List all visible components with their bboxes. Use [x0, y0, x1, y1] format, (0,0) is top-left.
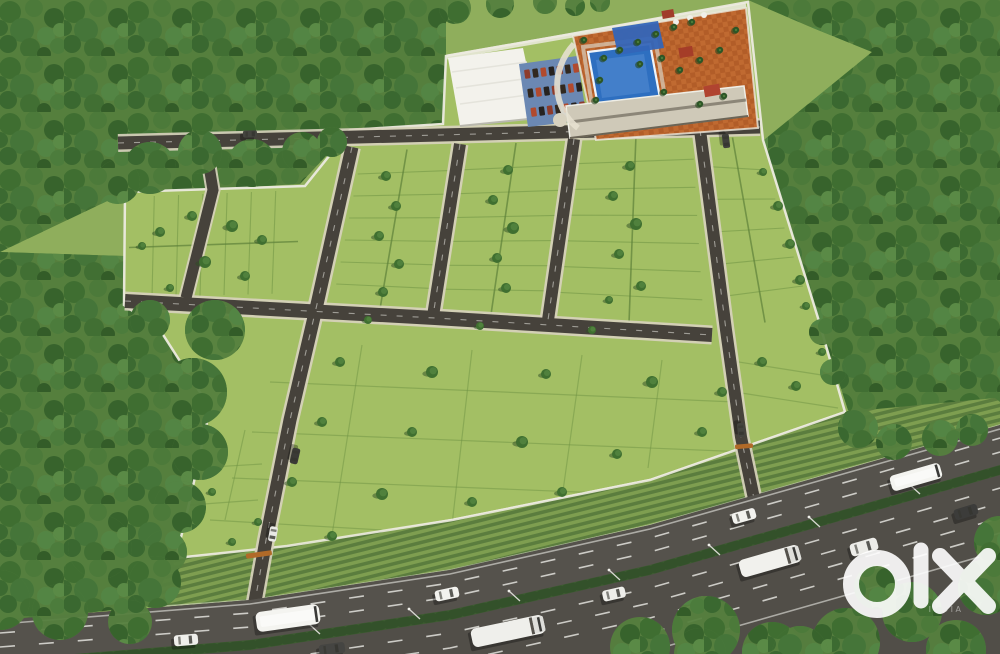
- canopy-cluster: [96, 160, 140, 204]
- streetlight-head: [508, 590, 511, 593]
- vehicle-body: [737, 423, 745, 438]
- canopy-cluster: [108, 600, 152, 644]
- tree: [544, 370, 550, 376]
- tree: [639, 282, 645, 288]
- canopy-cluster: [282, 132, 322, 172]
- tree: [628, 162, 634, 168]
- tree: [504, 284, 510, 290]
- aerial-render: Olx INDIA: [0, 0, 1000, 654]
- palm-tree: [723, 95, 725, 97]
- canopy-cluster: [922, 420, 958, 456]
- palm-tree: [691, 21, 693, 23]
- canopy-cluster: [178, 130, 222, 174]
- tree: [760, 358, 766, 364]
- windshield: [724, 142, 729, 146]
- palm-tree: [619, 49, 621, 51]
- tree: [203, 257, 210, 264]
- palm-tree: [595, 99, 597, 101]
- tree: [491, 196, 497, 202]
- tree: [611, 192, 617, 198]
- tree: [210, 489, 215, 494]
- canopy-cluster: [172, 424, 228, 480]
- tree: [140, 243, 145, 248]
- vehicle-body: [174, 633, 199, 646]
- tree: [168, 285, 173, 290]
- tree: [430, 367, 437, 374]
- tree: [761, 169, 766, 174]
- palm-tree: [699, 59, 701, 61]
- tree: [230, 221, 237, 228]
- tree: [410, 428, 416, 434]
- rear-window: [738, 425, 743, 428]
- tree: [804, 303, 809, 308]
- tree: [380, 489, 387, 496]
- tree: [338, 358, 344, 364]
- tree: [506, 166, 512, 172]
- palm-tree: [679, 69, 681, 71]
- tree: [290, 478, 296, 484]
- palm-tree: [603, 57, 605, 59]
- palm-tree: [663, 91, 665, 93]
- canopy-cluster: [185, 300, 245, 360]
- tree: [788, 240, 794, 246]
- canopy-cluster: [317, 127, 347, 157]
- palm-tree: [637, 41, 639, 43]
- palm-tree: [639, 63, 641, 65]
- streetlight-head: [708, 544, 711, 547]
- tree: [720, 388, 726, 394]
- tree: [158, 228, 164, 234]
- tree: [495, 254, 501, 260]
- canopy-cluster: [809, 319, 835, 345]
- tree: [615, 450, 621, 456]
- palm-tree: [599, 79, 601, 81]
- streetlight-head: [808, 516, 811, 519]
- tree: [381, 288, 387, 294]
- tree: [394, 202, 400, 208]
- tree: [634, 219, 641, 226]
- tree: [511, 223, 518, 230]
- tree: [470, 498, 476, 504]
- tree: [794, 382, 800, 388]
- canopy-cluster: [228, 139, 276, 187]
- tree: [590, 327, 595, 332]
- tree: [607, 297, 612, 302]
- tree: [820, 349, 825, 354]
- tree: [617, 250, 623, 256]
- tree: [256, 519, 261, 524]
- plaza-circle: [553, 113, 567, 127]
- tree: [330, 532, 336, 538]
- windshield: [252, 131, 255, 136]
- palm-tree: [719, 49, 721, 51]
- tree: [243, 272, 249, 278]
- palm-tree: [699, 103, 701, 105]
- rear-window: [245, 132, 247, 137]
- canopy-cluster: [32, 584, 88, 640]
- canopy-cluster: [130, 300, 170, 340]
- tree: [776, 202, 782, 208]
- canopy-cluster: [68, 515, 132, 579]
- vehicle-body: [243, 130, 257, 137]
- tree: [478, 323, 483, 328]
- palm-tree: [735, 29, 737, 31]
- tree: [190, 212, 196, 218]
- palm-tree: [661, 57, 663, 59]
- palm-tree: [583, 39, 585, 41]
- tree: [560, 488, 566, 494]
- canopy-cluster: [838, 408, 878, 448]
- tree: [230, 539, 235, 544]
- tree: [700, 428, 706, 434]
- windshield: [739, 431, 744, 435]
- streetlight-head: [608, 569, 611, 572]
- tree: [650, 377, 657, 384]
- canopy-cluster: [129, 556, 181, 608]
- olx-subtext: INDIA: [929, 605, 964, 614]
- streetlight-head: [408, 608, 411, 611]
- tree: [798, 276, 804, 282]
- tree: [320, 418, 326, 424]
- palm-tree: [655, 33, 657, 35]
- tree: [377, 232, 383, 238]
- tree: [520, 437, 527, 444]
- tree: [384, 172, 390, 178]
- canopy-cluster: [820, 359, 846, 385]
- canopy-cluster: [956, 414, 988, 446]
- tree: [260, 236, 266, 242]
- canopy-cluster: [159, 358, 227, 426]
- tree: [397, 260, 403, 266]
- tree: [366, 317, 371, 322]
- palm-tree: [673, 26, 675, 28]
- canopy-cluster: [154, 481, 206, 533]
- canopy-cluster: [876, 424, 912, 460]
